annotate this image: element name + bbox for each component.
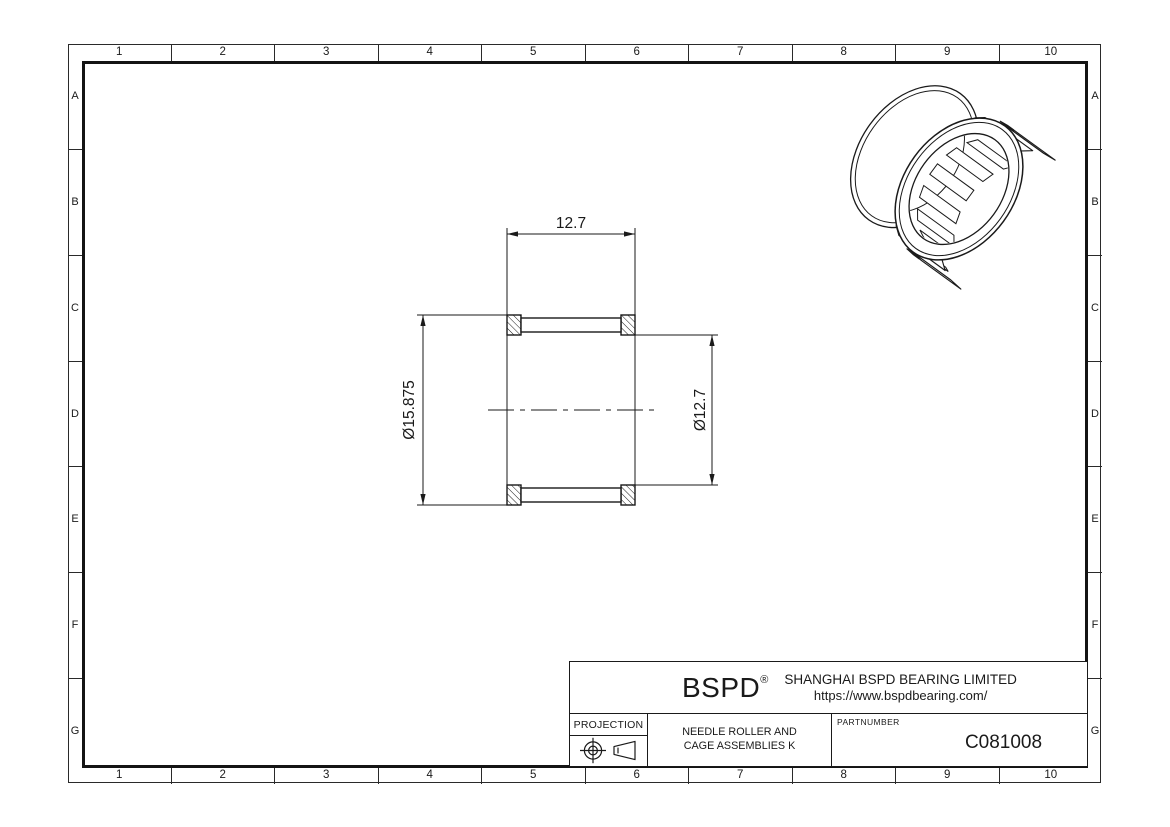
border-grid-rows-right: ABCDEFG: [1088, 44, 1102, 784]
title-block: BSPD® SHANGHAI BSPD BEARING LIMITED http…: [569, 661, 1088, 767]
grid-column-label: 2: [172, 44, 276, 61]
grid-column-label: 4: [379, 767, 483, 784]
bearing-isometric-view: [838, 68, 1070, 306]
grid-column-label: 2: [172, 767, 276, 784]
bearing-wireframe: [838, 68, 1055, 289]
product-title-line2: CAGE ASSEMBLIES K: [684, 740, 796, 754]
grid-column-label: 10: [1000, 44, 1103, 61]
border-grid-columns-top: 12345678910: [68, 44, 1102, 61]
grid-column-label: 1: [68, 44, 172, 61]
bearing-section-view: 12.7 Ø15.875 Ø12.7: [380, 195, 740, 525]
product-title-line1: NEEDLE ROLLER AND: [682, 726, 797, 740]
company-info: SHANGHAI BSPD BEARING LIMITED https://ww…: [784, 671, 1017, 704]
title-block-bottom-row: PROJECTION NEEDLE ROLL: [570, 714, 1087, 766]
projection-label: PROJECTION: [570, 714, 647, 736]
grid-row-label: D: [68, 362, 82, 468]
grid-row-label: G: [68, 679, 82, 784]
grid-column-label: 8: [793, 44, 897, 61]
grid-row-label: G: [1088, 679, 1102, 784]
section-outline: [507, 315, 635, 505]
grid-row-label: C: [1088, 256, 1102, 362]
grid-column-label: 3: [275, 44, 379, 61]
grid-column-label: 10: [1000, 767, 1103, 784]
projection-symbol-area: [570, 736, 647, 766]
drawing-sheet: 12345678910 12345678910 ABCDEFG ABCDEFG: [0, 0, 1170, 827]
grid-column-label: 7: [689, 44, 793, 61]
cage-section-hatch: [507, 485, 521, 505]
product-title-cell: NEEDLE ROLLER AND CAGE ASSEMBLIES K: [648, 714, 832, 766]
company-logo: BSPD®: [682, 674, 768, 702]
roller-section: [521, 488, 621, 502]
grid-row-label: F: [1088, 573, 1102, 679]
dimension-lines: [417, 228, 718, 505]
logo-text: BSPD: [682, 672, 760, 703]
grid-column-label: 9: [896, 44, 1000, 61]
grid-column-label: 3: [275, 767, 379, 784]
projection-cell: PROJECTION: [570, 714, 648, 766]
part-number-label: PARTNUMBER: [837, 717, 900, 727]
grid-row-label: E: [1088, 467, 1102, 573]
first-angle-projection-icon: [577, 737, 641, 764]
cage-section-hatch: [507, 315, 521, 335]
registered-trademark: ®: [760, 674, 768, 686]
dim-inner-diameter-label: Ø12.7: [692, 389, 709, 431]
cage-section-hatch: [621, 485, 635, 505]
grid-column-label: 1: [68, 767, 172, 784]
grid-row-label: B: [68, 150, 82, 256]
grid-column-label: 7: [689, 767, 793, 784]
grid-row-label: E: [68, 467, 82, 573]
grid-column-label: 4: [379, 44, 483, 61]
cage-section-hatch: [621, 315, 635, 335]
grid-row-label: B: [1088, 150, 1102, 256]
dimension-arrowheads: [420, 231, 714, 505]
grid-row-label: F: [68, 573, 82, 679]
grid-column-label: 5: [482, 44, 586, 61]
border-grid-rows-left: ABCDEFG: [68, 44, 82, 784]
border-grid-columns-bottom: 12345678910: [68, 767, 1102, 784]
company-name: SHANGHAI BSPD BEARING LIMITED: [784, 671, 1017, 688]
part-number-cell: PARTNUMBER C081008: [832, 714, 1087, 766]
part-number-value: C081008: [965, 732, 1042, 754]
dim-outer-diameter-label: Ø15.875: [401, 380, 418, 439]
grid-row-label: D: [1088, 362, 1102, 468]
grid-column-label: 6: [586, 44, 690, 61]
company-row: BSPD® SHANGHAI BSPD BEARING LIMITED http…: [570, 662, 1087, 714]
company-website: https://www.bspdbearing.com/: [784, 688, 1017, 704]
roller-section: [521, 318, 621, 332]
grid-column-label: 6: [586, 767, 690, 784]
grid-row-label: C: [68, 256, 82, 362]
grid-column-label: 5: [482, 767, 586, 784]
grid-row-label: A: [68, 44, 82, 150]
dim-width-label: 12.7: [556, 215, 586, 232]
grid-row-label: A: [1088, 44, 1102, 150]
grid-column-label: 8: [793, 767, 897, 784]
grid-column-label: 9: [896, 767, 1000, 784]
